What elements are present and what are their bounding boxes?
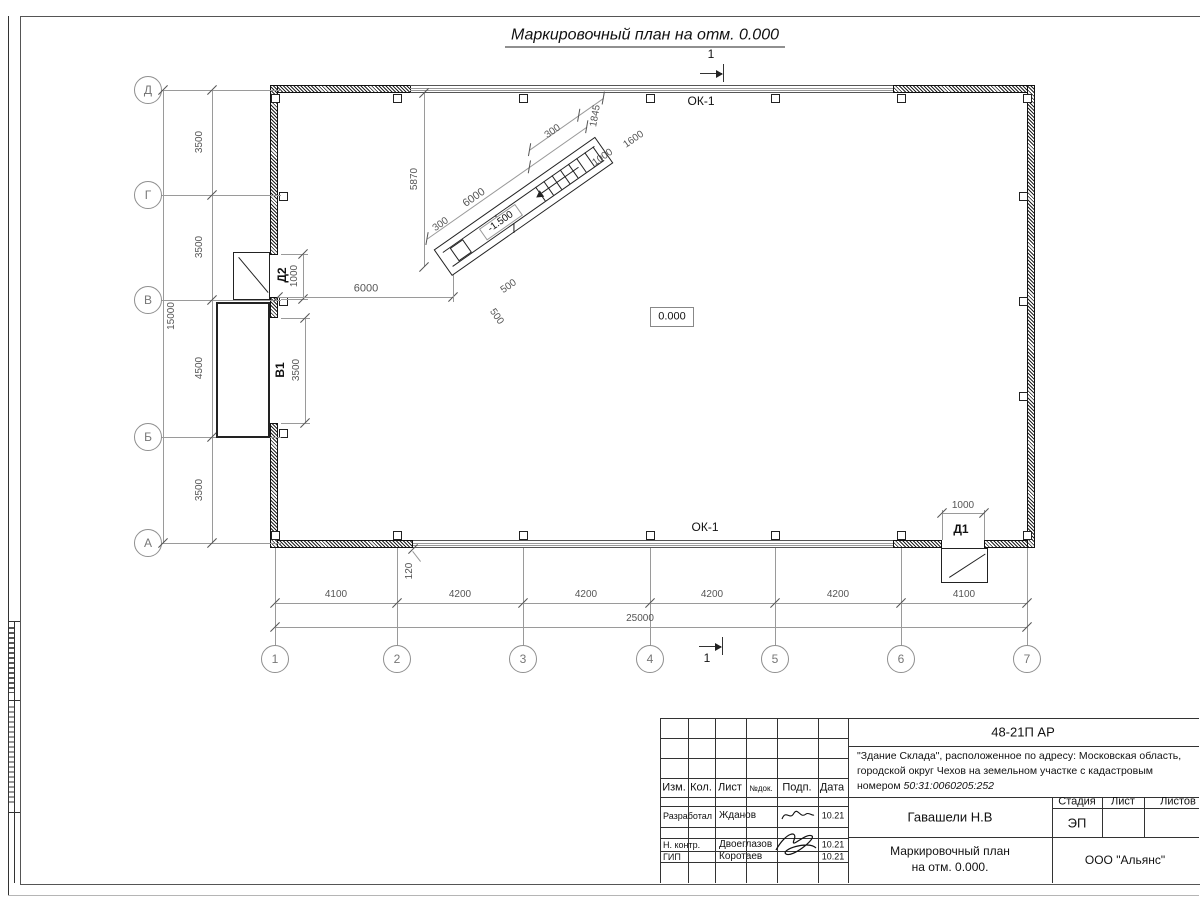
tb-desc-line3: номером 50:31:0060205:252 bbox=[857, 780, 994, 792]
level-mark-value: 0.000 bbox=[658, 312, 686, 323]
column bbox=[1023, 94, 1032, 103]
tb-stage-value: ЭП bbox=[1068, 817, 1087, 830]
axis-bubble-col: 1 bbox=[261, 645, 289, 673]
dim-value: 4100 bbox=[325, 590, 347, 600]
axis-line bbox=[161, 90, 281, 91]
axis-bubble-row: Б bbox=[134, 423, 162, 451]
tb-header-kol: Кол. bbox=[690, 783, 712, 794]
column bbox=[519, 531, 528, 540]
column bbox=[393, 94, 402, 103]
door-d2-label: Д2 bbox=[276, 267, 288, 282]
axis-line bbox=[397, 548, 398, 646]
dim-value: 4200 bbox=[449, 590, 471, 600]
dim-value: 4100 bbox=[953, 590, 975, 600]
dim-line-6000 bbox=[278, 297, 453, 298]
titleblock-line bbox=[1144, 797, 1145, 837]
dim-value: 4200 bbox=[575, 590, 597, 600]
tb-chief-name: Гавашели Н.В bbox=[908, 811, 993, 824]
section-tick-bottom bbox=[722, 637, 723, 655]
window-mark-bottom: ОК-1 bbox=[692, 521, 719, 533]
section-arrowhead-bottom bbox=[715, 643, 722, 651]
window-mark-top: ОК-1 bbox=[688, 95, 715, 107]
tb-header-list: Лист bbox=[718, 783, 742, 794]
dim-line-v1 bbox=[305, 318, 306, 423]
tb-row-role: Н. контр. bbox=[663, 840, 700, 850]
wall-left-lower bbox=[270, 423, 278, 548]
axis-label: Б bbox=[144, 430, 152, 444]
dim-value-6000: 6000 bbox=[354, 284, 378, 295]
axis-label: А bbox=[144, 536, 152, 550]
gate-v1-label: В1 bbox=[274, 362, 286, 377]
section-arrowhead-top bbox=[716, 70, 723, 78]
axis-line bbox=[775, 548, 776, 646]
dim-line-left-total bbox=[163, 90, 164, 543]
axis-bubble-col: 7 bbox=[1013, 645, 1041, 673]
dim-line-d1 bbox=[942, 513, 984, 514]
window-band-bottom bbox=[413, 540, 893, 548]
column bbox=[393, 531, 402, 540]
dim-leader bbox=[942, 510, 943, 540]
dim-value: 3500 bbox=[195, 131, 205, 153]
axis-line bbox=[161, 300, 281, 301]
dim-line-5870 bbox=[424, 93, 425, 267]
stamp-rotated-text bbox=[9, 706, 14, 804]
axis-bubble-row: Д bbox=[134, 76, 162, 104]
axis-bubble-row: Г bbox=[134, 181, 162, 209]
dim-value-total: 15000 bbox=[167, 302, 177, 330]
stamp-rotated-text bbox=[9, 627, 14, 693]
stamp-cell-divider bbox=[14, 621, 15, 883]
section-tick-top bbox=[723, 64, 724, 82]
dim-value: 3500 bbox=[195, 479, 205, 501]
titleblock-line bbox=[660, 718, 1199, 719]
drawing-main-title: Маркировочный план на отм. 0.000 bbox=[505, 27, 785, 48]
tb-sheets-label: Листов bbox=[1160, 797, 1196, 808]
titleblock-line bbox=[848, 746, 1199, 747]
axis-line bbox=[275, 548, 276, 646]
dim-leader bbox=[281, 254, 308, 255]
axis-line bbox=[523, 548, 524, 646]
wall-right bbox=[1027, 85, 1035, 548]
tb-row-role: ГИП bbox=[663, 852, 681, 862]
tb-sheet-label: Лист bbox=[1111, 797, 1135, 808]
axis-line bbox=[1027, 548, 1028, 646]
column bbox=[279, 192, 288, 201]
wall-top-left bbox=[270, 85, 411, 93]
axis-line bbox=[161, 195, 281, 196]
titleblock-line bbox=[660, 718, 661, 883]
column bbox=[1019, 297, 1028, 306]
titleblock-line bbox=[848, 718, 849, 883]
column bbox=[1019, 392, 1028, 401]
drawing-sheet: Маркировочный план на отм. 0.000 ОК-1 ОК… bbox=[0, 0, 1200, 900]
axis-bubble-row: В bbox=[134, 286, 162, 314]
dim-value-120: 120 bbox=[405, 563, 415, 580]
dim-value-d2: 1000 bbox=[290, 265, 300, 287]
axis-label: 3 bbox=[520, 652, 527, 666]
axis-label: В bbox=[144, 293, 152, 307]
section-mark-bottom: 1 bbox=[704, 652, 711, 664]
tb-row-name: Коротаев bbox=[719, 851, 762, 862]
dim-leader bbox=[984, 510, 985, 540]
dim-value-5870: 5870 bbox=[410, 168, 420, 190]
tb-header-podp: Подп. bbox=[782, 783, 811, 794]
tb-drawing-title-1: Маркировочный план bbox=[890, 845, 1010, 857]
titleblock-line bbox=[715, 718, 716, 883]
axis-label: Д bbox=[144, 83, 152, 97]
tb-row-date: 10.21 bbox=[822, 841, 845, 850]
tb-desc-line1: "Здание Склада", расположенное по адресу… bbox=[857, 750, 1181, 762]
tb-desc-line3-prefix: номером bbox=[857, 780, 904, 792]
dim-line-bottom-segments bbox=[275, 603, 1027, 604]
tb-header-data: Дата bbox=[820, 783, 844, 794]
section-mark-top: 1 bbox=[708, 48, 715, 60]
tb-drawing-title-2: на отм. 0.000. bbox=[912, 861, 989, 873]
signature-scribble bbox=[772, 828, 820, 860]
titleblock-line bbox=[848, 837, 1199, 838]
tb-doc-number: 48-21П АР bbox=[991, 726, 1055, 739]
axis-bubble-col: 5 bbox=[761, 645, 789, 673]
dim-value: 3500 bbox=[195, 236, 205, 258]
dim-value-v1: 3500 bbox=[292, 359, 302, 381]
axis-line bbox=[161, 543, 281, 544]
wall-top-right bbox=[893, 85, 1035, 93]
wall-left-upper bbox=[270, 85, 278, 255]
dim-value: 4500 bbox=[195, 357, 205, 379]
axis-line bbox=[901, 548, 902, 646]
column bbox=[897, 94, 906, 103]
dim-leader bbox=[281, 423, 310, 424]
wall-bottom-right-a bbox=[893, 540, 942, 548]
tb-header-izm: Изм. bbox=[662, 783, 686, 794]
column bbox=[646, 94, 655, 103]
tb-row-name: Двоеглазов bbox=[719, 839, 772, 850]
axis-label: Г bbox=[145, 188, 152, 202]
titleblock-line bbox=[1102, 797, 1103, 837]
wall-bottom-left bbox=[270, 540, 413, 548]
ramp-break-mark bbox=[513, 223, 514, 233]
dim-line-bottom-total bbox=[275, 627, 1027, 628]
axis-bubble-col: 2 bbox=[383, 645, 411, 673]
dim-leader bbox=[281, 299, 308, 300]
axis-bubble-col: 6 bbox=[887, 645, 915, 673]
tb-company-name: ООО "Альянс" bbox=[1085, 854, 1165, 866]
axis-line bbox=[650, 548, 651, 646]
titleblock-line bbox=[688, 718, 689, 883]
window-band-top bbox=[410, 85, 893, 93]
axis-label: 5 bbox=[772, 652, 779, 666]
column bbox=[771, 531, 780, 540]
signature-scribble bbox=[780, 806, 816, 824]
tb-row-role: Разработал bbox=[663, 811, 712, 821]
tb-stage-label: Стадия bbox=[1058, 797, 1096, 808]
tb-cadastral-number: 50:31:0060205:252 bbox=[904, 780, 995, 792]
axis-label: 4 bbox=[647, 652, 654, 666]
ramp-pit-square bbox=[450, 239, 472, 261]
dim-line-d2 bbox=[303, 253, 304, 300]
dim-value: 4200 bbox=[827, 590, 849, 600]
axis-label: 2 bbox=[394, 652, 401, 666]
column bbox=[646, 531, 655, 540]
column bbox=[1023, 531, 1032, 540]
titleblock-line bbox=[1052, 808, 1199, 809]
dim-line-left-segments bbox=[212, 90, 213, 543]
tb-desc-line2: городской округ Чехов на земельном участ… bbox=[857, 765, 1153, 777]
column bbox=[897, 531, 906, 540]
titleblock-line bbox=[1052, 797, 1053, 883]
tb-header-ndok: №док. bbox=[749, 785, 772, 793]
gate-v1-dock bbox=[216, 302, 270, 438]
axis-bubble-col: 4 bbox=[636, 645, 664, 673]
axis-bubble-col: 3 bbox=[509, 645, 537, 673]
axis-label: 1 bbox=[272, 652, 279, 666]
column bbox=[271, 531, 280, 540]
door-d1-label: Д1 bbox=[953, 523, 968, 535]
dim-value: 4200 bbox=[701, 590, 723, 600]
axis-label: 6 bbox=[898, 652, 905, 666]
column bbox=[519, 94, 528, 103]
column bbox=[771, 94, 780, 103]
stair-tread bbox=[576, 158, 587, 172]
tb-row-date: 10.21 bbox=[822, 812, 845, 821]
column bbox=[271, 94, 280, 103]
dim-leader bbox=[281, 318, 310, 319]
tb-row-date: 10.21 bbox=[822, 853, 845, 862]
dim-value-d1: 1000 bbox=[952, 501, 974, 511]
tb-row-name: Жданов bbox=[719, 810, 756, 821]
outer-frame-bottom bbox=[8, 895, 1199, 896]
column bbox=[1019, 192, 1028, 201]
axis-label: 7 bbox=[1024, 652, 1031, 666]
axis-bubble-row: А bbox=[134, 529, 162, 557]
dim-value-total: 25000 bbox=[626, 614, 654, 624]
